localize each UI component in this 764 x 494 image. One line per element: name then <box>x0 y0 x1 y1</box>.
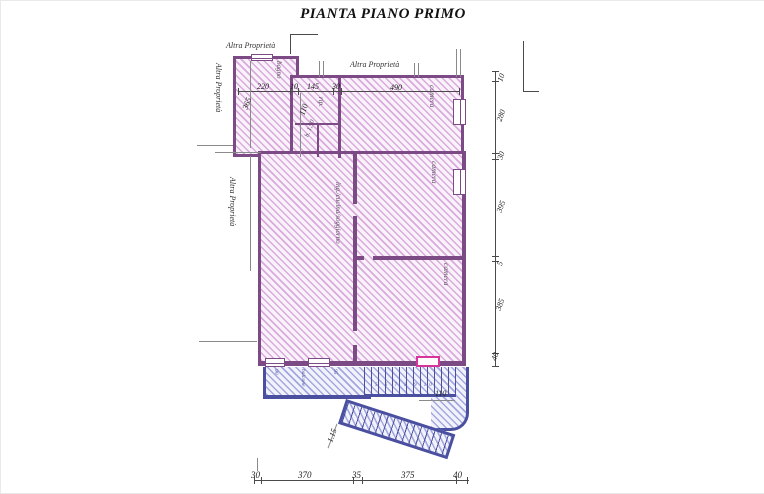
boundary-line-left-v <box>250 156 251 271</box>
tick <box>492 366 499 367</box>
dim-balcony-90: 90 <box>273 369 279 375</box>
tick <box>492 256 499 257</box>
dim-left-365: 365 <box>241 99 253 108</box>
boundary-line-left-2 <box>215 152 261 153</box>
dim-right-280: 280 <box>495 111 507 120</box>
window-symbol-bottom-1 <box>265 358 285 367</box>
stair-step-numbers: 5 6 7 8 9 10 <box>375 383 435 388</box>
dim-right-10: 10 <box>497 73 505 82</box>
window-symbol-bottom-2 <box>308 358 330 367</box>
dim-bottom-370: 370 <box>298 470 312 480</box>
door-symbol-balcony <box>416 356 440 367</box>
dim-bottom-30: 30 <box>251 470 260 480</box>
boundary-line-left-1 <box>197 145 233 146</box>
extension-line <box>418 63 419 77</box>
dim-right-395: 395 <box>495 202 507 211</box>
dim-right-5: 5 <box>498 259 502 268</box>
tick <box>362 477 363 484</box>
wall-living-cameras-2 <box>353 216 357 331</box>
window-symbol-right-1 <box>453 99 466 125</box>
room-label-balcone: balcone <box>300 369 306 386</box>
tick <box>261 477 262 484</box>
extension-line <box>414 63 415 77</box>
dimension-line-top <box>238 91 460 92</box>
extension-line <box>319 61 320 77</box>
tick <box>238 88 239 95</box>
dim-bottom-40: 40 <box>453 470 462 480</box>
dim-bottom-375: 375 <box>401 470 415 480</box>
dim-top-30: 30 <box>332 82 340 91</box>
floor-plan-sheet: PIANTA PIANO PRIMO 5 6 7 8 9 10 110 1.15… <box>0 0 764 494</box>
reference-mark-right-h <box>523 91 539 92</box>
altra-proprieta-top-left: Altra Proprietà <box>226 41 275 50</box>
boundary-line-left-3 <box>199 341 257 342</box>
room-label-camera-top: camera <box>428 85 437 108</box>
balcony-deck <box>263 367 371 399</box>
dim-top-10: 10 <box>290 82 298 91</box>
dim-bottom-35: 35 <box>352 470 361 480</box>
dim-stair-115: 1.15 <box>325 431 339 440</box>
extension-line <box>460 49 461 77</box>
window-symbol-right-2 <box>453 169 466 195</box>
dim-top-490: 490 <box>390 83 402 92</box>
dim-right-385: 385 <box>494 300 506 309</box>
reference-mark-topleft-h <box>290 34 318 35</box>
reference-mark-right-v <box>523 41 524 92</box>
dim-top-220: 220 <box>257 82 269 91</box>
wall-between-cameras <box>373 256 463 260</box>
room-label-bagno: bagno <box>275 61 283 79</box>
tick <box>467 477 468 484</box>
dim-line-stair-110 <box>419 400 455 401</box>
room-label-rip: rip. <box>317 97 325 107</box>
wall-between-cameras-jamb <box>357 256 364 260</box>
dim-right-40: 40 <box>491 352 499 361</box>
reference-mark-topleft-v <box>290 34 291 54</box>
tick <box>341 88 342 95</box>
dim-stair-110: 110 <box>435 389 446 398</box>
room-label-living: ing./cucina/soggiorno <box>334 182 342 244</box>
wall-living-cameras-3 <box>353 345 357 363</box>
extension-line <box>456 49 457 77</box>
window-symbol-bagno-top <box>251 54 273 61</box>
room-label-camera-mid: camera <box>430 161 439 184</box>
dim-balcony-95: 95 <box>332 369 338 375</box>
altra-proprieta-left-mid: Altra Proprietà <box>228 177 237 226</box>
altra-proprieta-left-upper: Altra Proprietà <box>214 63 223 112</box>
wall-living-cameras-1 <box>353 154 357 204</box>
room-label-rip-height: h. 1,90 <box>301 125 319 132</box>
plan-title: PIANTA PIANO PRIMO <box>1 6 764 23</box>
tick <box>298 88 299 95</box>
dim-left-110: 110 <box>298 105 309 114</box>
dim-top-145: 145 <box>307 82 319 91</box>
extension-line <box>323 61 324 77</box>
altra-proprieta-top-center: Altra Proprietà <box>350 60 399 69</box>
dim-right-30: 30 <box>497 151 505 160</box>
room-label-camera-bottom: camera <box>442 263 451 286</box>
tick <box>459 88 460 95</box>
